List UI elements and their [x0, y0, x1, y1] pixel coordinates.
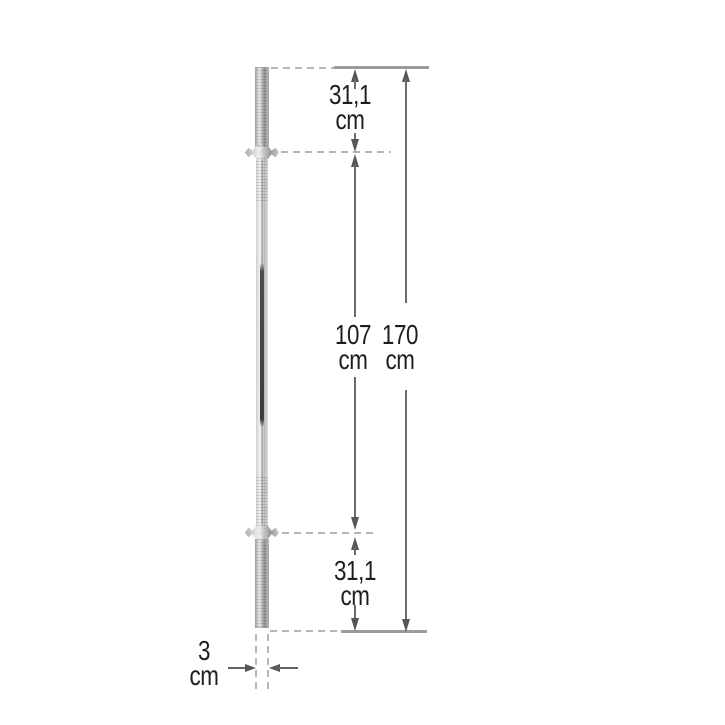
dim-label-total: 170 cm [356, 322, 444, 372]
dim-unit: cm [340, 583, 369, 608]
dim-label-bottom-sleeve: 31,1 cm [311, 558, 399, 608]
ref-line-bar-top-solid [334, 66, 429, 69]
dim-label-top-sleeve: 31,1 cm [306, 82, 394, 132]
barbell-dimension-diagram: 31,1 cm 107 cm 170 cm 31,1 cm 3 cm [0, 0, 725, 725]
ref-line-bar-bottom-dashed [270, 630, 342, 632]
dim-line-bottom-sleeve [354, 547, 356, 555]
dim-line-shaft [354, 377, 356, 519]
ref-line-bar-left-edge [255, 634, 257, 691]
arrowhead-down-icon [402, 619, 410, 632]
dim-unit: cm [385, 347, 414, 372]
dim-line-shaft [354, 164, 356, 317]
barbell-top-sleeve [255, 67, 269, 147]
arrowhead-down-icon [351, 618, 359, 631]
dim-line-total [405, 390, 407, 620]
spinlock-collar-top [245, 144, 279, 161]
dim-unit: cm [335, 107, 364, 132]
dim-label-diameter: 3 cm [160, 638, 248, 688]
dim-unit: cm [189, 663, 218, 688]
arrowhead-down-icon [351, 517, 359, 530]
ref-line-collar-bottom [282, 532, 378, 534]
barbell-bottom-sleeve [255, 539, 269, 628]
ref-line-bar-right-edge [267, 634, 269, 691]
ref-line-collar-top [281, 151, 391, 153]
arrowhead-down-icon [351, 139, 359, 152]
ref-line-bar-top-dashed [271, 67, 335, 69]
barbell-thread-upper [256, 158, 268, 203]
barbell-thread-lower [256, 477, 268, 529]
spinlock-collar-bottom [245, 524, 279, 541]
dim-line-total [405, 79, 407, 303]
barbell-grip-stripe [260, 263, 264, 427]
dim-line-diameter-right [275, 667, 298, 669]
